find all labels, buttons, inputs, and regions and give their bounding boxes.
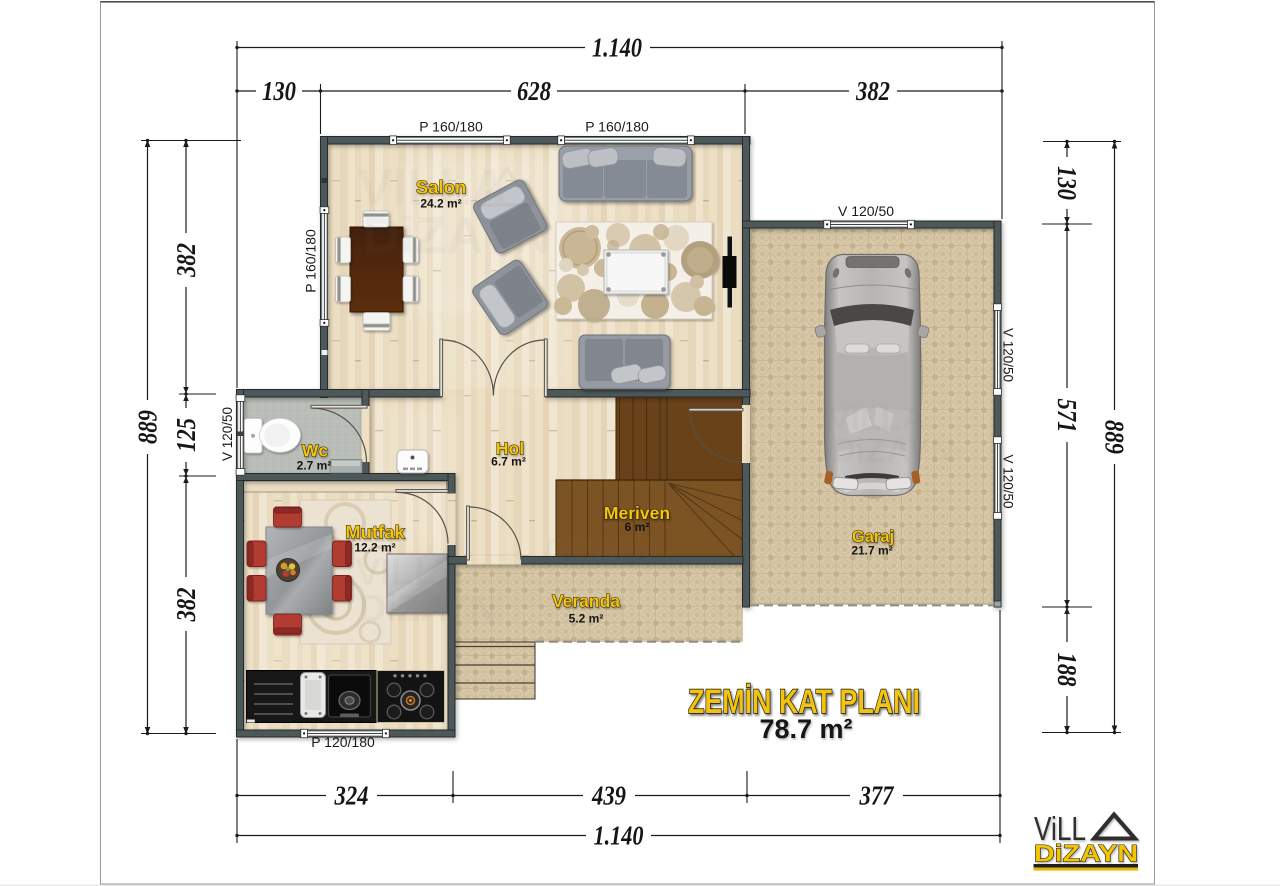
svg-text:571: 571: [1052, 399, 1082, 433]
svg-text:DiZAYN: DiZAYN: [831, 432, 954, 470]
svg-text:889: 889: [1100, 420, 1130, 454]
svg-text:DiZAYN: DiZAYN: [546, 534, 655, 567]
svg-text:21.7 m²: 21.7 m²: [851, 544, 892, 558]
svg-text:382: 382: [171, 588, 201, 623]
svg-text:78.7 m²: 78.7 m²: [759, 714, 852, 744]
svg-text:125: 125: [171, 418, 201, 452]
svg-text:628: 628: [517, 76, 551, 106]
svg-text:24.2 m²: 24.2 m²: [420, 197, 461, 211]
svg-text:P 120/180: P 120/180: [311, 734, 375, 750]
svg-text:P 160/180: P 160/180: [419, 119, 483, 135]
svg-text:377: 377: [859, 781, 895, 811]
svg-text:439: 439: [591, 781, 626, 811]
svg-text:188: 188: [1052, 653, 1082, 687]
svg-text:DiZAYN: DiZAYN: [363, 207, 552, 265]
svg-text:DiZAYN: DiZAYN: [359, 588, 497, 630]
svg-text:382: 382: [171, 243, 201, 278]
svg-text:V 120/50: V 120/50: [1001, 454, 1016, 508]
svg-text:1.140: 1.140: [592, 33, 642, 63]
svg-text:6.7 m²: 6.7 m²: [491, 455, 526, 469]
svg-text:130: 130: [262, 76, 296, 106]
svg-text:Veranda: Veranda: [552, 591, 620, 611]
svg-text:12.2 m²: 12.2 m²: [354, 541, 395, 555]
svg-text:Wc: Wc: [302, 441, 329, 461]
svg-text:6 m²: 6 m²: [625, 520, 650, 534]
svg-text:V 120/50: V 120/50: [838, 203, 894, 219]
svg-text:1.140: 1.140: [594, 821, 644, 851]
svg-text:130: 130: [1052, 166, 1082, 200]
svg-text:Mutfak: Mutfak: [345, 522, 405, 543]
svg-text:P 160/180: P 160/180: [585, 119, 649, 135]
svg-text:Salon: Salon: [416, 177, 466, 198]
svg-text:889: 889: [133, 410, 163, 444]
svg-text:V 120/50: V 120/50: [1001, 328, 1016, 382]
svg-text:382: 382: [855, 76, 890, 106]
svg-text:5.2 m²: 5.2 m²: [569, 612, 604, 626]
svg-text:324: 324: [334, 781, 369, 811]
svg-text:2.7 m²: 2.7 m²: [297, 459, 332, 473]
svg-text:DiZAYN: DiZAYN: [1034, 841, 1138, 868]
svg-text:P 160/180: P 160/180: [303, 229, 319, 293]
svg-text:V 120/50: V 120/50: [220, 407, 235, 461]
